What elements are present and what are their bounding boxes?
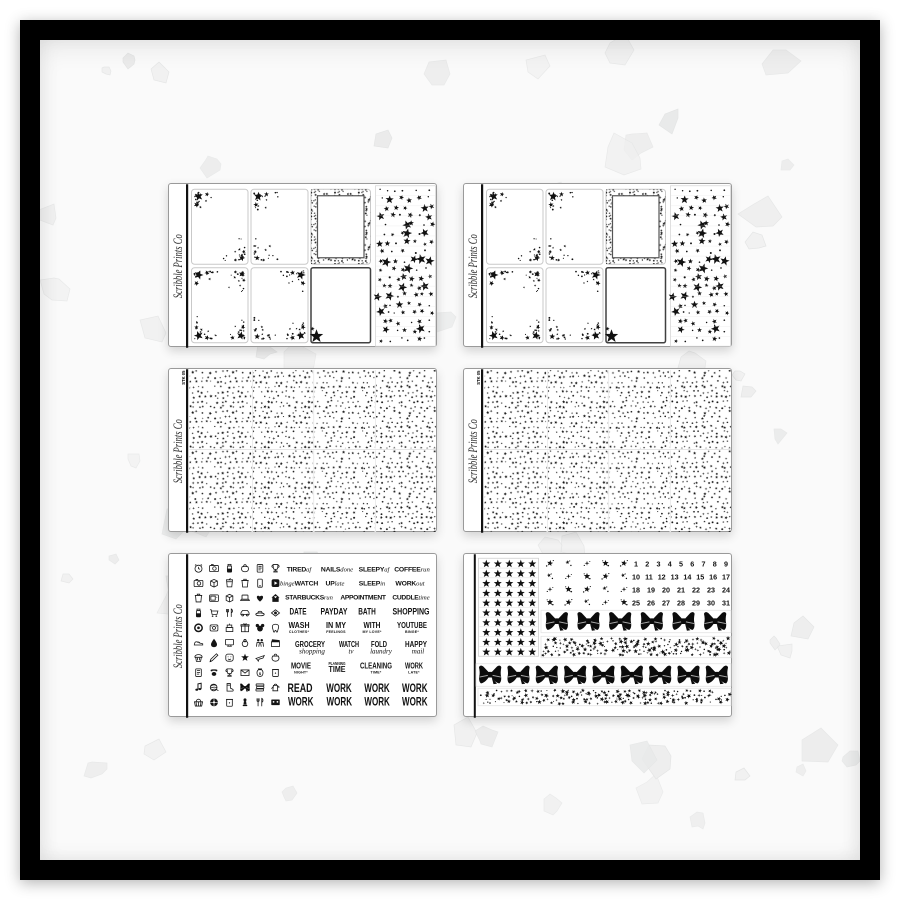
svg-text:20: 20 xyxy=(662,585,670,594)
svg-text:STK 05: STK 05 xyxy=(181,370,186,385)
svg-text:bingeWATCH: bingeWATCH xyxy=(279,580,317,587)
svg-text:NAILSdone: NAILSdone xyxy=(320,567,352,574)
svg-text:STK 05: STK 05 xyxy=(476,370,481,385)
svg-text:19: 19 xyxy=(647,585,655,594)
svg-text:CUDDLEtime: CUDDLEtime xyxy=(392,594,429,601)
svg-text:TIME: TIME xyxy=(328,664,345,674)
svg-text:25: 25 xyxy=(632,598,640,607)
svg-text:shopping: shopping xyxy=(299,647,325,655)
svg-text:Scribble Prints Co: Scribble Prints Co xyxy=(466,419,480,483)
svg-text:4: 4 xyxy=(667,559,671,568)
svg-text:$: $ xyxy=(258,671,261,676)
svg-text:WORK: WORK xyxy=(364,681,390,695)
svg-text:CLOTHES*: CLOTHES* xyxy=(288,630,309,634)
svg-text:BINGE*: BINGE* xyxy=(405,630,419,634)
svg-text:24: 24 xyxy=(722,585,730,594)
svg-text:STARBUCKSrun: STARBUCKSrun xyxy=(285,594,333,601)
svg-text:WORK: WORK xyxy=(287,695,313,709)
svg-text:YOUTUBE: YOUTUBE xyxy=(397,620,427,630)
svg-text:tv: tv xyxy=(348,647,354,655)
svg-text:22: 22 xyxy=(692,585,700,594)
svg-text:NIGHT*: NIGHT* xyxy=(294,670,308,674)
svg-text:13: 13 xyxy=(670,572,678,581)
svg-text:TIME*: TIME* xyxy=(370,670,381,674)
svg-text:FEELINGS: FEELINGS xyxy=(326,630,346,634)
svg-text:SHOPPING: SHOPPING xyxy=(392,606,429,616)
svg-text:10: 10 xyxy=(632,572,640,581)
svg-text:WORK: WORK xyxy=(405,660,424,670)
svg-text:16: 16 xyxy=(709,572,717,581)
svg-text:31: 31 xyxy=(722,598,730,607)
svg-text:WASH: WASH xyxy=(288,620,309,630)
svg-text:IN MY: IN MY xyxy=(326,620,346,630)
svg-text:MY LOVE*: MY LOVE* xyxy=(362,630,382,634)
svg-text:WITH: WITH xyxy=(363,620,380,630)
svg-text:SLEEPin: SLEEPin xyxy=(358,580,385,587)
svg-text:15: 15 xyxy=(696,572,704,581)
svg-text:PAYDAY: PAYDAY xyxy=(320,606,347,616)
svg-text:mail: mail xyxy=(411,647,424,655)
svg-text:21: 21 xyxy=(677,585,685,594)
svg-text:WORK: WORK xyxy=(326,695,352,709)
svg-text:APPOINTMENT: APPOINTMENT xyxy=(340,594,387,601)
svg-text:READ: READ xyxy=(287,681,312,695)
svg-text:7: 7 xyxy=(701,559,705,568)
svg-text:MOVIE: MOVIE xyxy=(291,660,311,670)
svg-text:WORK: WORK xyxy=(402,695,428,709)
svg-text:UPlate: UPlate xyxy=(325,580,344,587)
svg-text:CLEANING: CLEANING xyxy=(360,660,392,670)
svg-text:WORK: WORK xyxy=(326,681,352,695)
svg-text:SLEEPYaf: SLEEPYaf xyxy=(358,567,390,574)
svg-text:28: 28 xyxy=(677,598,685,607)
svg-text:23: 23 xyxy=(707,585,715,594)
svg-text:BATH: BATH xyxy=(358,606,376,616)
svg-text:1: 1 xyxy=(634,559,638,568)
svg-text:Scribble Prints Co: Scribble Prints Co xyxy=(171,234,185,298)
svg-text:9: 9 xyxy=(724,559,728,568)
svg-text:3: 3 xyxy=(656,559,660,568)
svg-text:TIREDaf: TIREDaf xyxy=(286,567,312,574)
svg-text:WORKout: WORKout xyxy=(395,580,424,587)
svg-text:6: 6 xyxy=(690,559,694,568)
svg-text:17: 17 xyxy=(722,572,730,581)
svg-text:Scribble Prints Co: Scribble Prints Co xyxy=(171,419,185,483)
svg-text:LATE*: LATE* xyxy=(408,670,420,674)
svg-text:14: 14 xyxy=(683,572,691,581)
svg-text:COFFEErun: COFFEErun xyxy=(394,567,430,574)
svg-text:27: 27 xyxy=(662,598,670,607)
svg-text:29: 29 xyxy=(692,598,700,607)
svg-text:12: 12 xyxy=(657,572,665,581)
svg-text:DATE: DATE xyxy=(289,606,306,616)
svg-text:laundry: laundry xyxy=(370,647,393,655)
svg-text:Scribble Prints Co: Scribble Prints Co xyxy=(466,234,480,298)
svg-text:WORK: WORK xyxy=(364,695,390,709)
svg-text:2: 2 xyxy=(645,559,649,568)
svg-text:5: 5 xyxy=(679,559,683,568)
svg-text:Scribble Prints Co: Scribble Prints Co xyxy=(171,604,185,668)
svg-text:30: 30 xyxy=(707,598,715,607)
svg-text:26: 26 xyxy=(647,598,655,607)
svg-text:11: 11 xyxy=(645,572,653,581)
svg-text:WORK: WORK xyxy=(402,681,428,695)
svg-text:18: 18 xyxy=(632,585,640,594)
svg-text:8: 8 xyxy=(712,559,716,568)
